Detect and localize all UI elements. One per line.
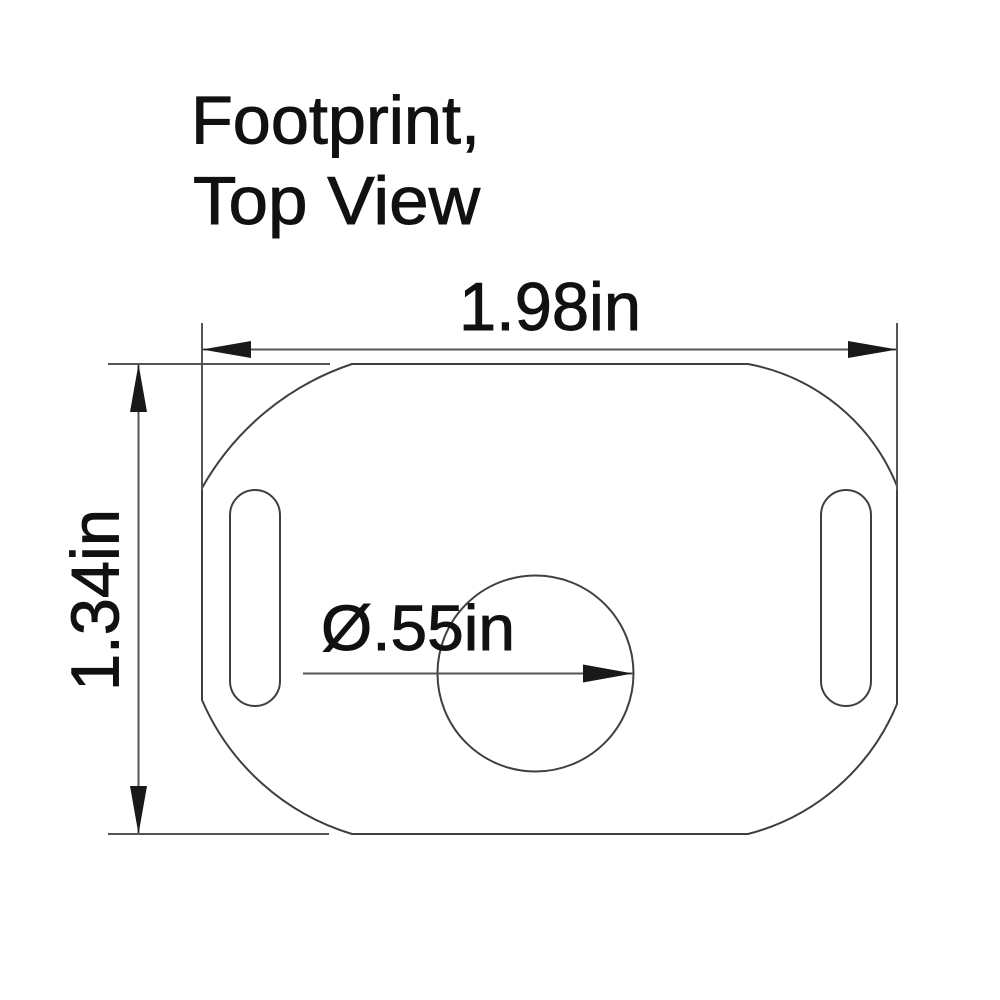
svg-text:Top View: Top View bbox=[193, 164, 480, 239]
svg-text:Ø.55in: Ø.55in bbox=[321, 592, 515, 664]
svg-text:Footprint,: Footprint, bbox=[191, 84, 480, 159]
svg-text:1.98in: 1.98in bbox=[459, 270, 641, 345]
svg-text:1.34in: 1.34in bbox=[59, 509, 134, 691]
